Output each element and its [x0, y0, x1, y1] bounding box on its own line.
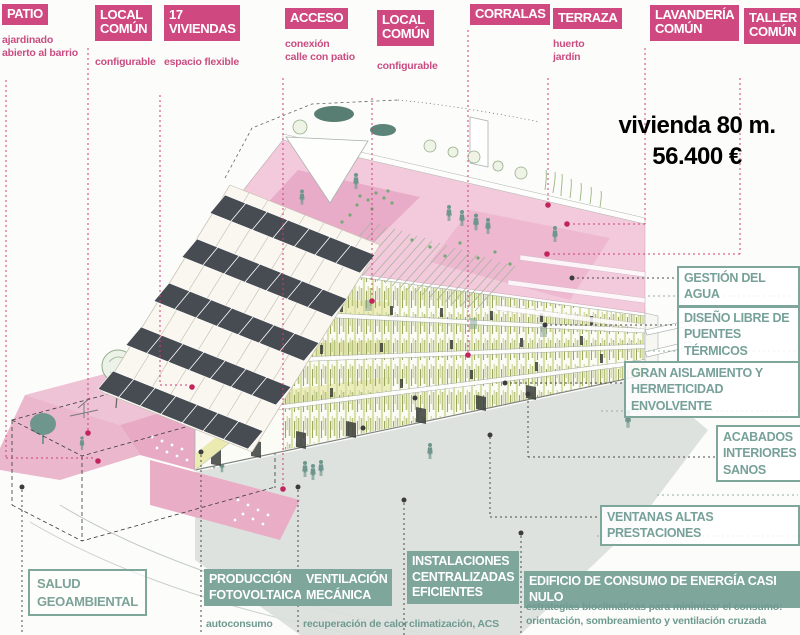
infographic-page: vivienda 80 m. 56.400 € PATIO LOCAL COMÚ…: [0, 0, 800, 635]
label-instalaciones-centralizadas: INSTALACIONES CENTRALIZADAS EFICIENTES: [407, 551, 519, 604]
label-patio: PATIO: [2, 4, 48, 25]
label-ventanas: VENTANAS ALTAS PRESTACIONES: [600, 505, 800, 546]
label-produccion-fotovoltaica: PRODUCCIÓN FOTOVOLTAICA: [204, 569, 307, 606]
label-diseno-libre: DISEÑO LIBRE DE PUENTES TÉRMICOS: [677, 306, 800, 363]
label-local-comun-1: LOCAL COMÚN: [95, 5, 152, 41]
sublabel-terraza: huerto jardín: [553, 38, 584, 63]
sublabel-instalaciones-centralizadas: climatización, ACS: [409, 617, 499, 631]
price-caption: vivienda 80 m. 56.400 €: [598, 110, 796, 172]
label-gestion-del-agua: GESTIÓN DEL AGUA: [677, 266, 800, 307]
sublabel-local-comun-2: configurable: [377, 60, 438, 73]
sublabel-ventilacion-mecanica: recuperación de calor: [303, 617, 408, 631]
label-salud-geoambiental: SALUD GEOAMBIENTAL: [28, 569, 147, 616]
sublabel-17-viviendas: espacio flexible: [164, 56, 239, 69]
label-acceso: ACCESO: [285, 8, 348, 29]
label-acabados-interiores: ACABADOS INTERIORES SANOS: [716, 425, 800, 482]
label-taller-comun: TALLER COMÚN: [744, 8, 800, 44]
price-caption-line1: vivienda 80 m.: [598, 110, 796, 141]
label-gran-aislamiento: GRAN AISLAMIENTO Y HERMETICIDAD ENVOLVEN…: [624, 361, 800, 418]
label-17-viviendas: 17 VIVIENDAS: [164, 5, 240, 41]
label-terraza: TERRAZA: [553, 8, 622, 29]
sublabel-acceso: conexión calle con patio: [285, 38, 355, 63]
label-lavanderia-comun: LAVANDERÍA COMÚN: [650, 5, 739, 41]
sublabel-local-comun-1: configurable: [95, 56, 156, 69]
label-corralas: CORRALAS: [470, 4, 550, 25]
price-caption-line2: 56.400 €: [598, 141, 796, 172]
label-ventilacion-mecanica: VENTILACIÓN MECÁNICA: [301, 569, 392, 606]
sublabel-patio: ajardinado abierto al barrio: [2, 34, 78, 59]
label-local-comun-2: LOCAL COMÚN: [377, 10, 434, 46]
sublabel-edificio-consumo-casi-nulo: estrategias bioclimáticas para minimizar…: [526, 600, 782, 628]
sublabel-produccion-fotovoltaica: autoconsumo: [206, 617, 273, 631]
